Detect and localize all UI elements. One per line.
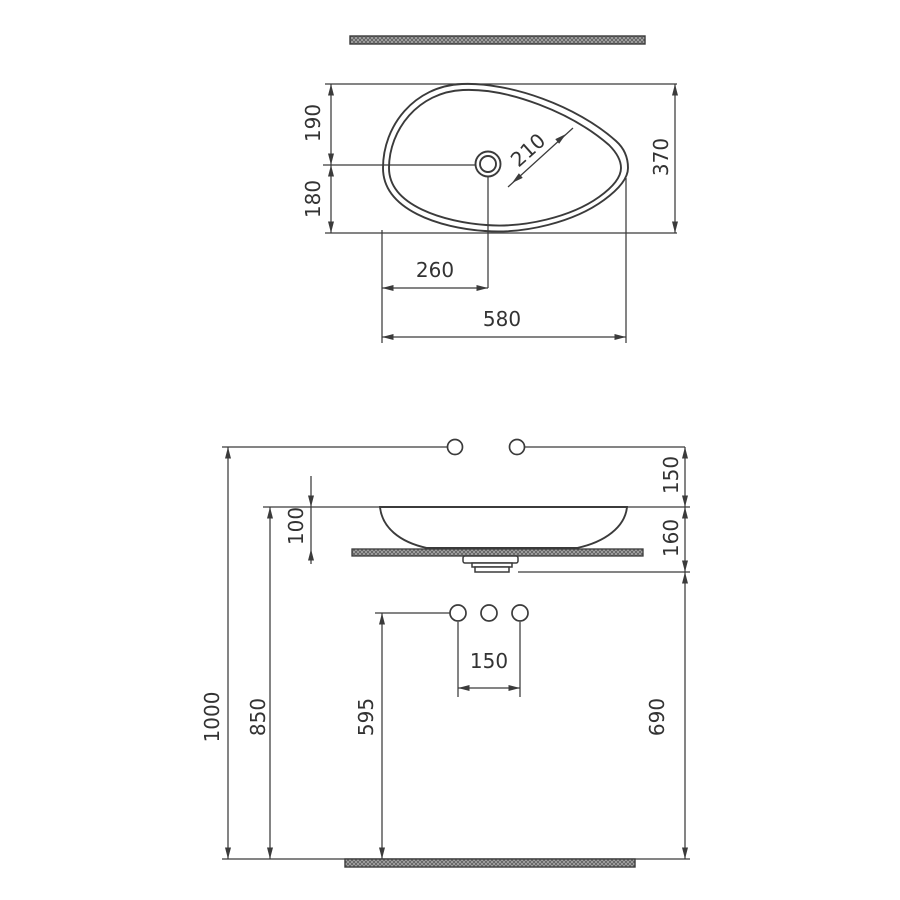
- dim-label-210: 210: [506, 128, 550, 171]
- dim-label-190: 190: [301, 104, 325, 142]
- arrowhead-icon: [672, 84, 678, 96]
- arrowhead-icon: [458, 685, 470, 691]
- arrowhead-icon: [225, 848, 231, 860]
- basin-outline-inner: [389, 90, 621, 226]
- arrowhead-icon: [682, 507, 688, 519]
- dim-label-150-wall: 150: [659, 456, 683, 494]
- supply-hole-circle: [512, 605, 528, 621]
- arrowhead-icon: [382, 285, 394, 291]
- wall-faucet-holes: [448, 440, 525, 455]
- dim-label-690: 690: [645, 698, 669, 736]
- arrowhead-icon: [509, 685, 521, 691]
- floor-section-bar: [345, 859, 635, 867]
- dim-label-260: 260: [416, 258, 454, 282]
- dim-label-160: 160: [659, 519, 683, 557]
- supply-hole-circle: [450, 605, 466, 621]
- arrowhead-icon: [225, 447, 231, 459]
- dim-label-580: 580: [483, 307, 521, 331]
- side-view-labels: 150 160 100 1000 850 595 690 150: [200, 456, 683, 743]
- arrowhead-icon: [477, 285, 489, 291]
- top-view: 190 180 370 210 260 580: [301, 36, 678, 343]
- supply-connection-holes: [450, 605, 528, 621]
- dim-label-100: 100: [284, 507, 308, 545]
- top-view-dimension-lines: [323, 84, 677, 343]
- wall-section-bar: [350, 36, 645, 44]
- dim-label-1000: 1000: [200, 692, 224, 743]
- dim-label-370: 370: [649, 138, 673, 176]
- drain-hole-inner-circle: [480, 156, 496, 172]
- drain-flange: [463, 556, 518, 563]
- technical-drawing-page: 190 180 370 210 260 580: [0, 0, 900, 900]
- side-elevation-view: 150 160 100 1000 850 595 690 150: [200, 440, 690, 868]
- dim-label-595: 595: [354, 698, 378, 736]
- faucet-hole-circle: [510, 440, 525, 455]
- basin-profile-outline: [380, 507, 627, 548]
- drain-tailpiece: [463, 556, 518, 572]
- arrowhead-icon: [328, 154, 334, 166]
- arrowhead-icon: [267, 848, 273, 860]
- technical-drawing-canvas: 190 180 370 210 260 580: [0, 0, 900, 900]
- arrowhead-icon: [328, 84, 334, 96]
- arrowhead-icon: [328, 165, 334, 177]
- faucet-hole-circle: [448, 440, 463, 455]
- dim-label-150-holes: 150: [470, 649, 508, 673]
- arrowhead-icon: [308, 549, 314, 561]
- arrowhead-icon: [682, 848, 688, 860]
- arrowhead-icon: [308, 496, 314, 508]
- supply-hole-circle: [481, 605, 497, 621]
- arrowhead-icon: [682, 561, 688, 573]
- arrowhead-icon: [267, 507, 273, 519]
- drain-body-lower: [475, 567, 509, 572]
- countertop-section-bar: [352, 549, 643, 556]
- basin-top-outline: [383, 84, 628, 232]
- arrowhead-icon: [382, 334, 394, 340]
- arrowhead-icon: [682, 572, 688, 584]
- arrowhead-icon: [328, 222, 334, 234]
- arrowhead-icon: [682, 496, 688, 508]
- arrowhead-icon: [379, 613, 385, 625]
- arrowhead-icon: [615, 334, 627, 340]
- arrowhead-icon: [672, 222, 678, 234]
- dim-label-850: 850: [246, 698, 270, 736]
- dim-label-180: 180: [301, 180, 325, 218]
- arrowhead-icon: [379, 848, 385, 860]
- top-view-labels: 190 180 370 210 260 580: [301, 104, 673, 331]
